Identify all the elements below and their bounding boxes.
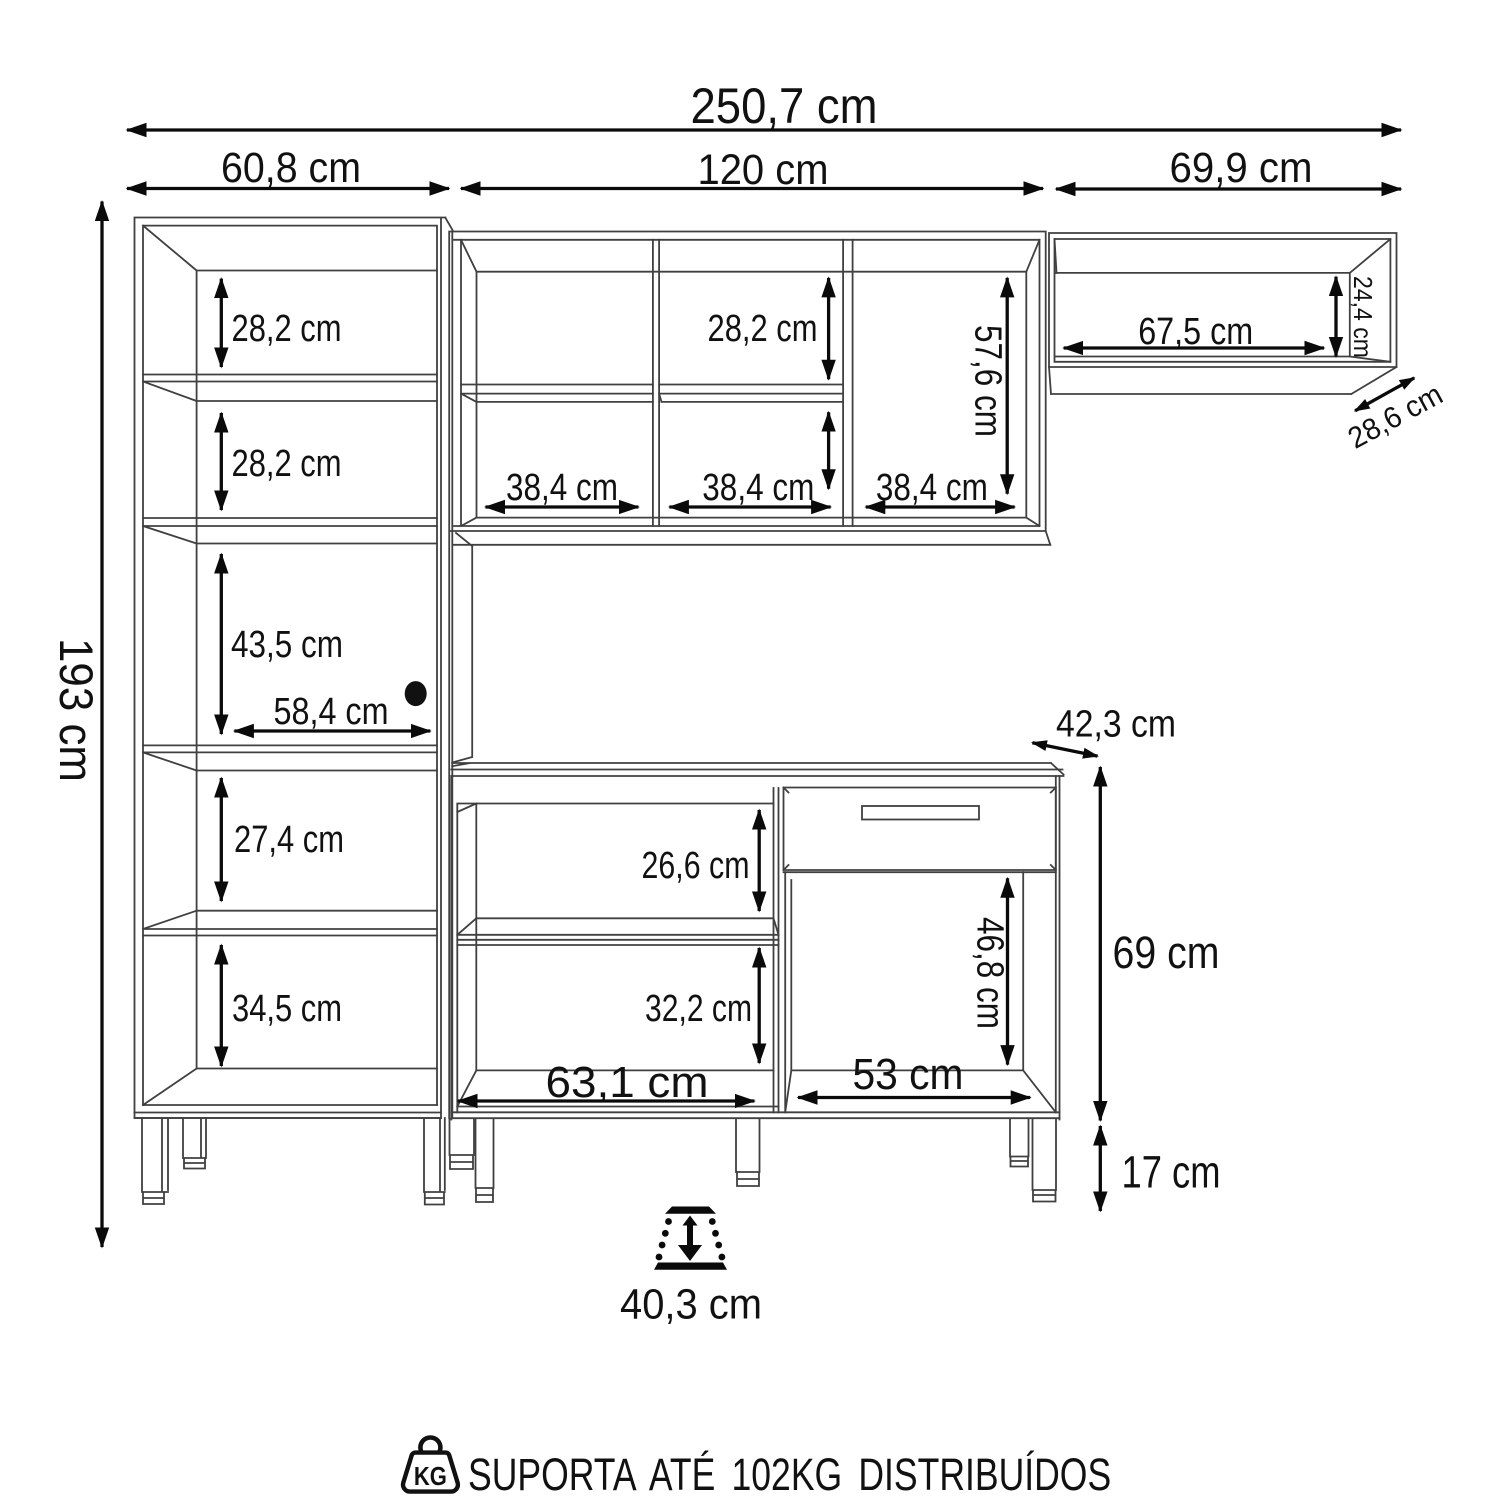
svg-text:27,4 cm: 27,4 cm [234, 819, 344, 861]
svg-text:46,8 cm: 46,8 cm [969, 917, 1011, 1029]
svg-text:120 cm: 120 cm [698, 146, 829, 194]
svg-text:58,4 cm: 58,4 cm [274, 691, 389, 733]
svg-text:40,3 cm: 40,3 cm [620, 1281, 762, 1329]
svg-text:38,4 cm: 38,4 cm [876, 467, 988, 509]
svg-text:28,2 cm: 28,2 cm [232, 308, 342, 350]
svg-text:28,2 cm: 28,2 cm [232, 443, 342, 485]
svg-text:38,4 cm: 38,4 cm [702, 467, 814, 509]
svg-text:193 cm: 193 cm [50, 638, 103, 782]
svg-text:69,9 cm: 69,9 cm [1170, 144, 1313, 192]
svg-text:53 cm: 53 cm [853, 1050, 964, 1099]
svg-text:43,5 cm: 43,5 cm [231, 624, 343, 666]
svg-text:28,2 cm: 28,2 cm [708, 308, 818, 350]
svg-text:KG: KG [414, 1461, 447, 1491]
svg-text:42,3 cm: 42,3 cm [1056, 704, 1176, 746]
svg-text:24,4 cm: 24,4 cm [1348, 276, 1378, 358]
svg-text:32,2 cm: 32,2 cm [645, 988, 752, 1030]
svg-text:57,6 cm: 57,6 cm [967, 325, 1009, 437]
svg-text:26,6 cm: 26,6 cm [642, 845, 750, 887]
svg-text:SUPORTA ATÉ 102KG DISTRIBUÍDOS: SUPORTA ATÉ 102KG DISTRIBUÍDOS [468, 1449, 1111, 1500]
svg-text:34,5 cm: 34,5 cm [232, 988, 342, 1030]
svg-text:60,8 cm: 60,8 cm [221, 144, 361, 192]
svg-text:69 cm: 69 cm [1113, 927, 1220, 978]
svg-text:17 cm: 17 cm [1122, 1147, 1221, 1198]
svg-text:38,4 cm: 38,4 cm [506, 467, 618, 509]
svg-text:250,7 cm: 250,7 cm [691, 78, 878, 134]
